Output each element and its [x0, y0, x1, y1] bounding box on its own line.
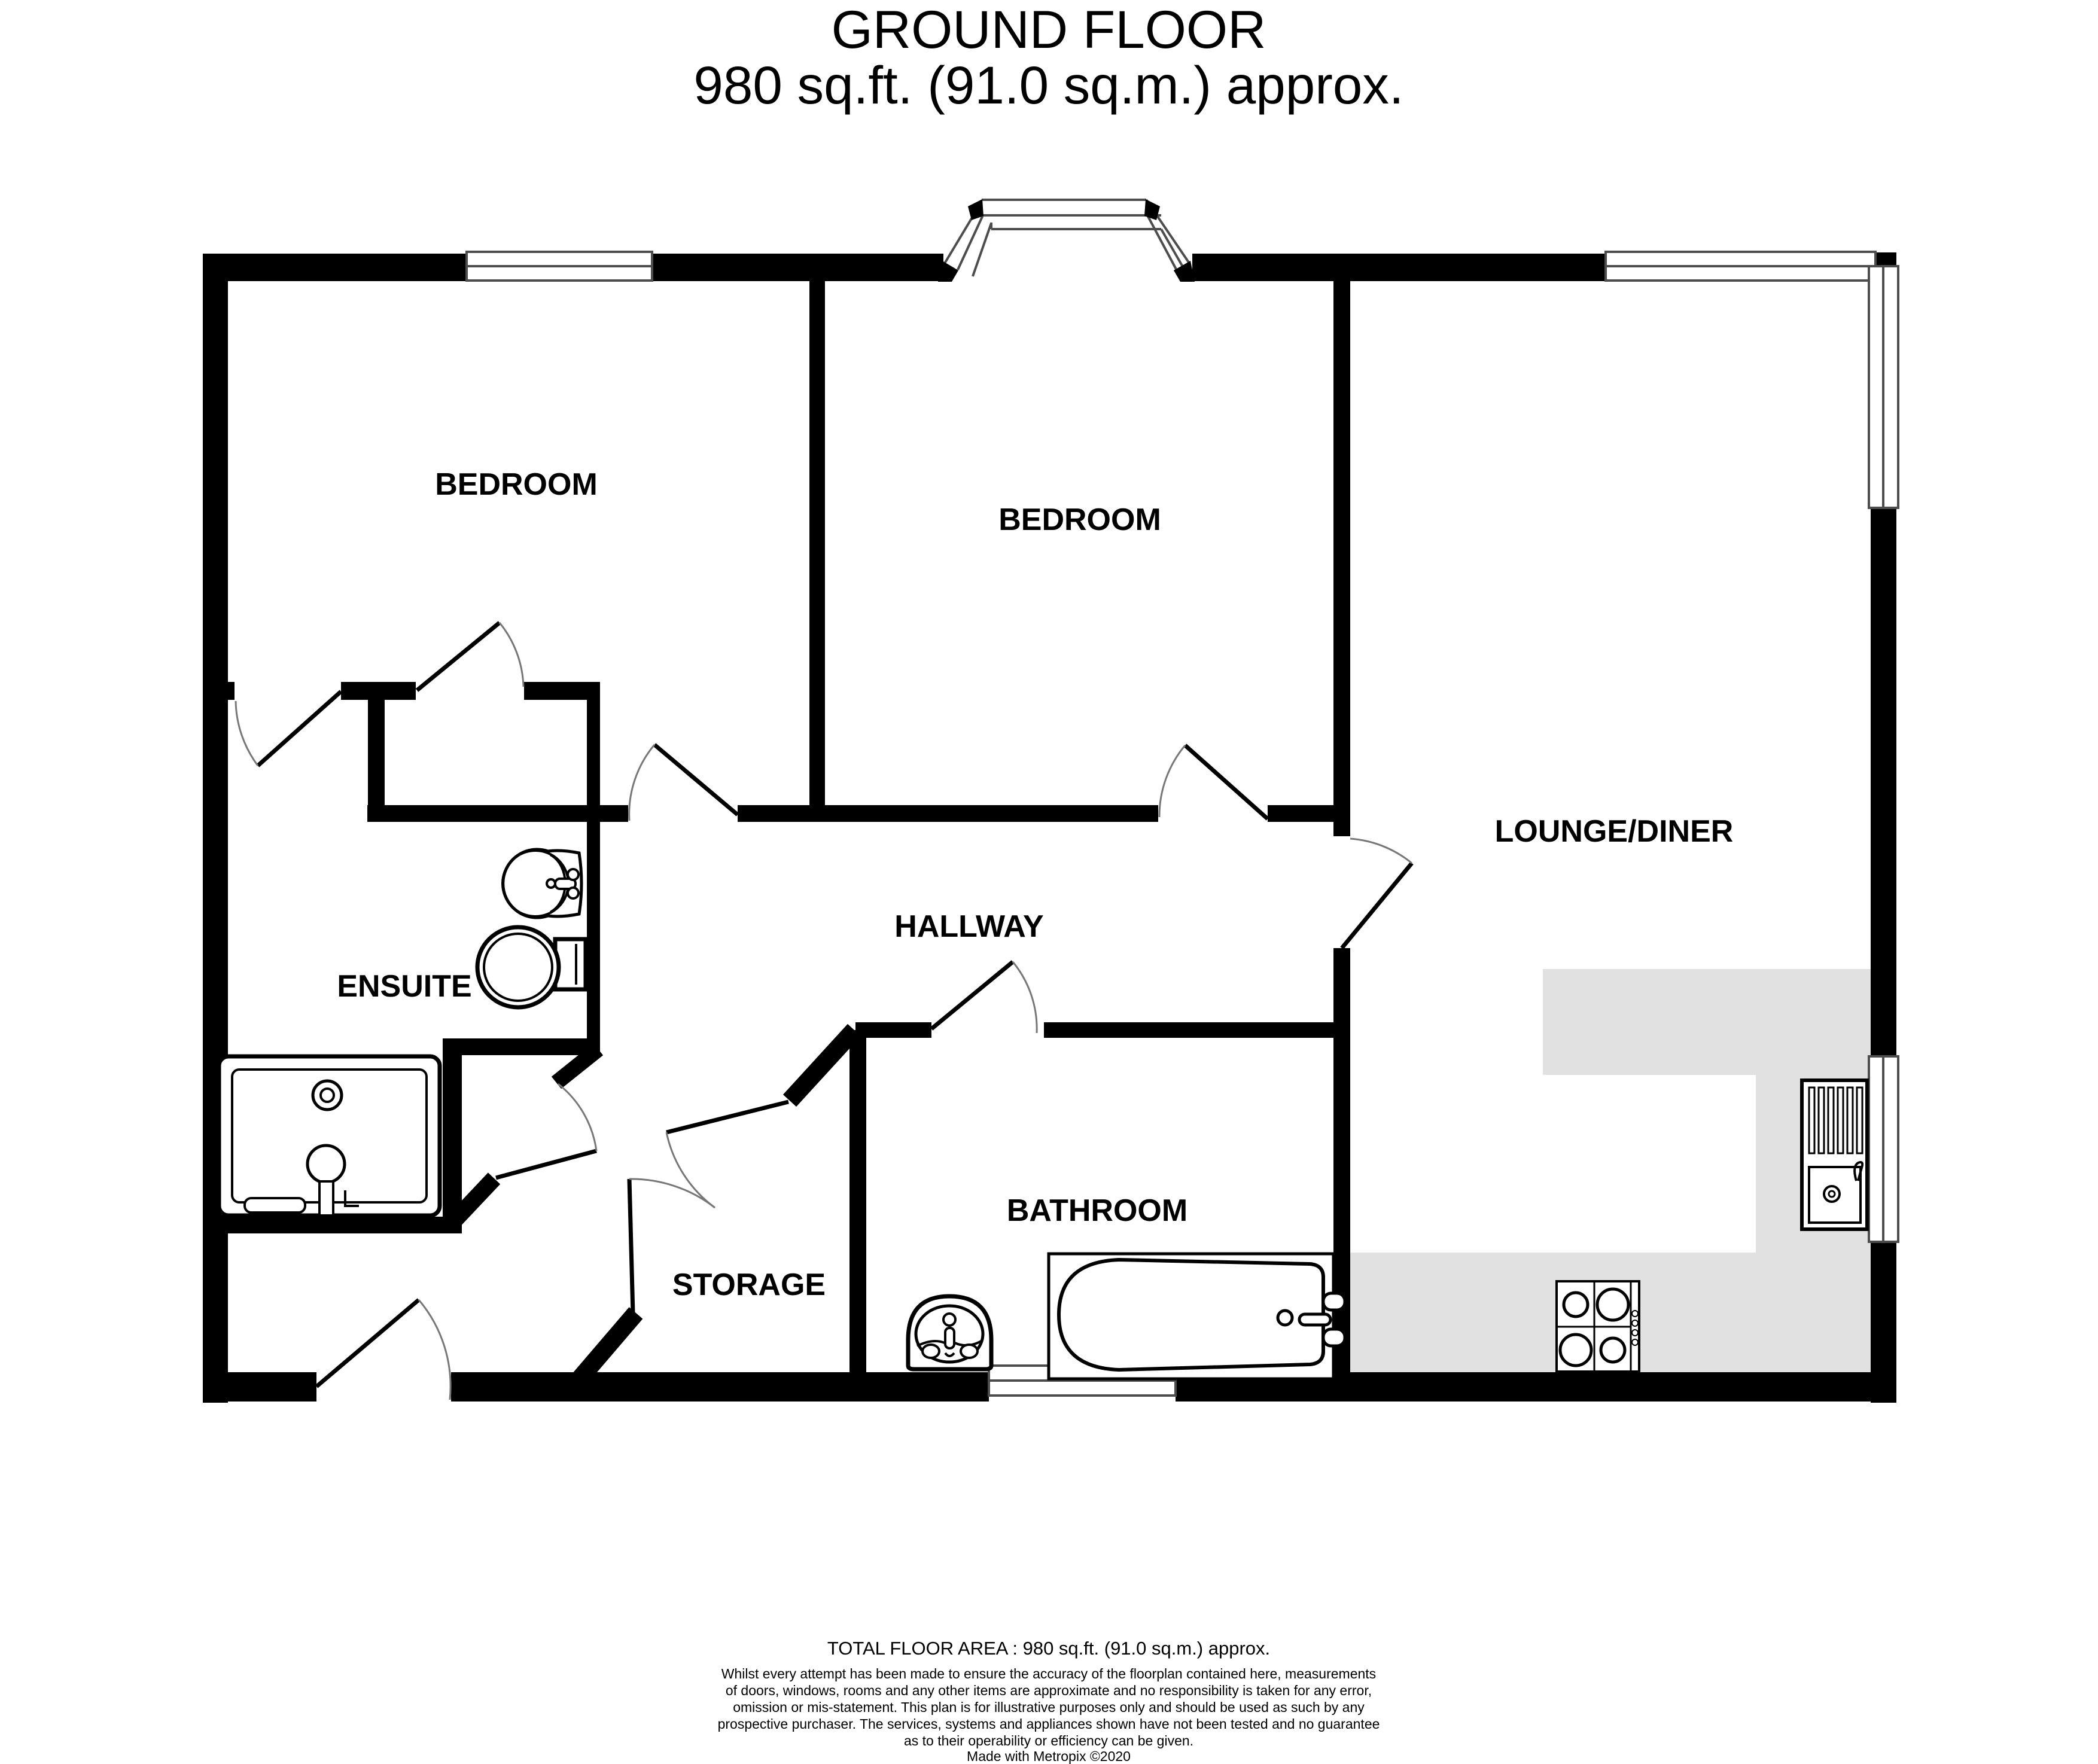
svg-text:TOTAL FLOOR AREA : 980 sq.ft.: TOTAL FLOOR AREA : 980 sq.ft. (91.0 sq.m…	[827, 1638, 1270, 1659]
svg-text:of doors, windows, rooms and a: of doors, windows, rooms and any other i…	[726, 1683, 1372, 1698]
svg-text:Made with Metropix ©2020: Made with Metropix ©2020	[967, 1748, 1131, 1764]
svg-text:omission or mis-statement. Thi: omission or mis-statement. This plan is …	[733, 1699, 1365, 1715]
svg-text:as to their operability or eff: as to their operability or efficiency ca…	[904, 1733, 1193, 1748]
svg-text:980 sq.ft. (91.0 sq.m.) approx: 980 sq.ft. (91.0 sq.m.) approx.	[693, 55, 1403, 115]
svg-text:HALLWAY: HALLWAY	[894, 909, 1043, 944]
svg-text:GROUND FLOOR: GROUND FLOOR	[832, 0, 1266, 59]
svg-text:LOUNGE/DINER: LOUNGE/DINER	[1495, 814, 1734, 849]
svg-text:BEDROOM: BEDROOM	[435, 467, 598, 502]
svg-text:BEDROOM: BEDROOM	[998, 502, 1161, 537]
svg-text:Whilst every attempt has been: Whilst every attempt has been made to en…	[721, 1666, 1376, 1681]
svg-text:ENSUITE: ENSUITE	[337, 969, 471, 1004]
svg-text:BATHROOM: BATHROOM	[1007, 1193, 1187, 1228]
svg-text:prospective purchaser. The ser: prospective purchaser. The services, sys…	[718, 1716, 1380, 1732]
svg-text:STORAGE: STORAGE	[672, 1268, 826, 1302]
